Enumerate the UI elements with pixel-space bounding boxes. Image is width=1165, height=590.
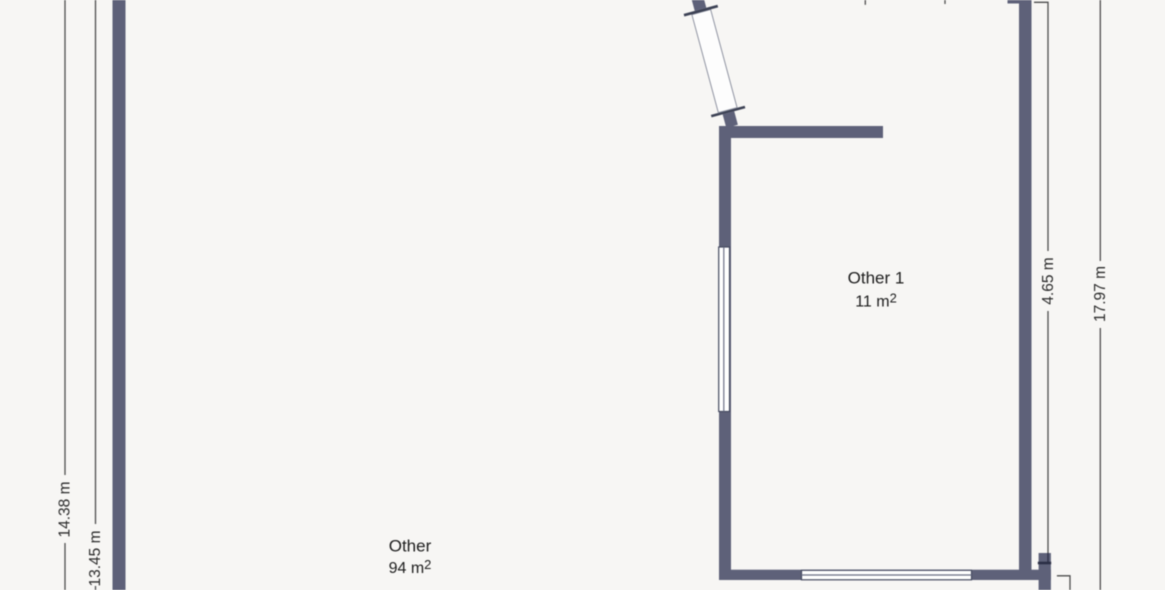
svg-text:4.65 m: 4.65 m (1040, 257, 1057, 304)
svg-text:17.97 m: 17.97 m (1092, 266, 1109, 322)
svg-text:Other: Other (389, 537, 432, 556)
svg-text:14.38 m: 14.38 m (57, 481, 74, 537)
svg-text:Other 1: Other 1 (848, 269, 905, 288)
svg-text:13.45 m: 13.45 m (87, 530, 104, 586)
